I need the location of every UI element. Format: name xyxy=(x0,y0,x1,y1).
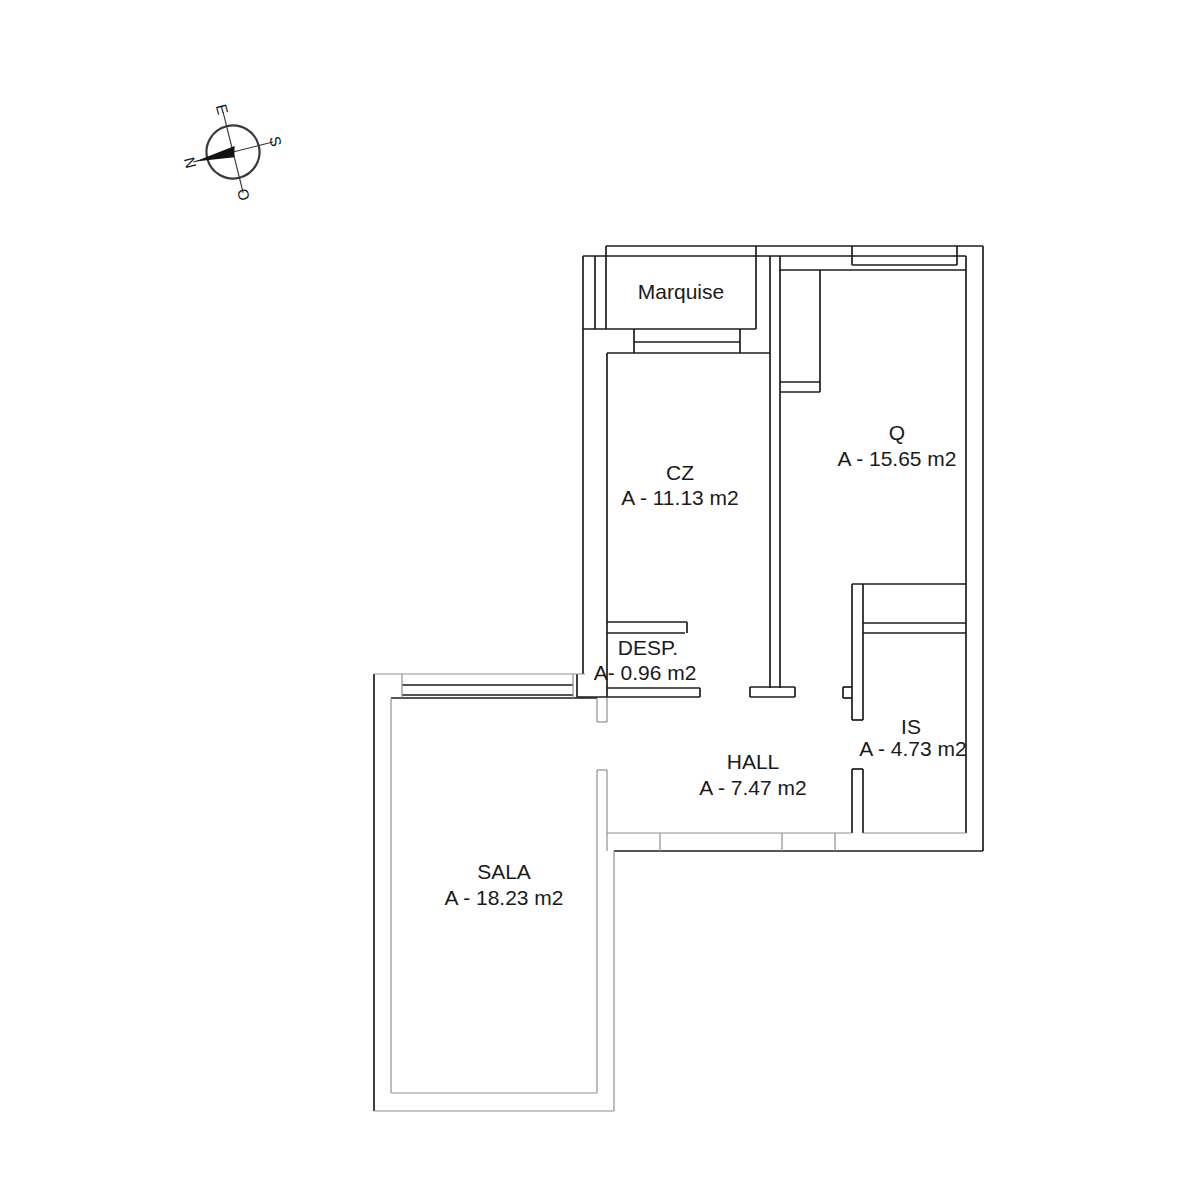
room-label-is-name: IS xyxy=(901,715,921,738)
room-labels: MarquiseCZA - 11.13 m2QA - 15.65 m2DESP.… xyxy=(444,280,966,909)
room-label-cz-area: A - 11.13 m2 xyxy=(621,486,739,509)
floor-plan-drawing: E S N O MarquiseCZA - 11.13 m2QA - 15.65… xyxy=(0,0,1200,1200)
room-label-hall-area: A - 7.47 m2 xyxy=(699,776,806,799)
room-label-desp-name: DESP. xyxy=(618,636,678,659)
room-label-is-area: A - 4.73 m2 xyxy=(859,737,966,760)
room-label-q-name: Q xyxy=(889,421,905,444)
room-label-sala-name: SALA xyxy=(477,860,531,883)
compass-letter-west: O xyxy=(234,187,253,202)
room-label-marquise-name: Marquise xyxy=(638,280,724,303)
compass-letter-east: E xyxy=(213,102,232,116)
compass-letter-south: S xyxy=(266,134,285,148)
compass-rose: E S N O xyxy=(170,92,296,213)
room-label-q-area: A - 15.65 m2 xyxy=(837,447,956,470)
room-label-desp-area: A- 0.96 m2 xyxy=(594,661,697,684)
room-label-sala-area: A - 18.23 m2 xyxy=(444,886,563,909)
room-label-cz-name: CZ xyxy=(666,461,694,484)
compass-needle-icon xyxy=(194,146,237,167)
compass-letter-north: N xyxy=(181,155,200,170)
floor-plan-page: E S N O MarquiseCZA - 11.13 m2QA - 15.65… xyxy=(0,0,1200,1200)
room-label-hall-name: HALL xyxy=(727,750,780,773)
